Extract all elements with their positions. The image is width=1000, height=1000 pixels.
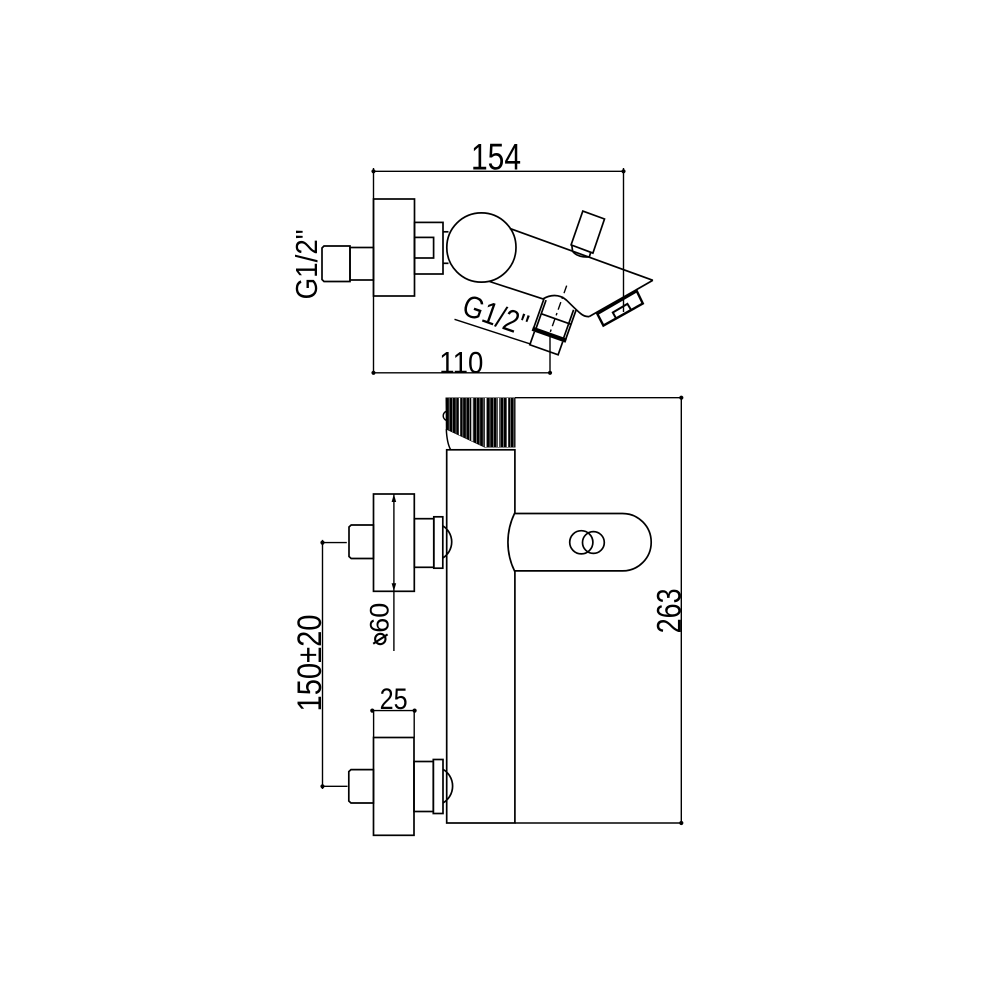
svg-text:110: 110 <box>439 346 483 380</box>
svg-text:263: 263 <box>650 588 688 633</box>
svg-text:60: 60 <box>365 603 395 633</box>
svg-text:25: 25 <box>380 683 408 716</box>
svg-text:154: 154 <box>471 137 521 178</box>
svg-text:150±20: 150±20 <box>291 615 329 712</box>
svg-text:G1/2": G1/2" <box>289 229 324 299</box>
